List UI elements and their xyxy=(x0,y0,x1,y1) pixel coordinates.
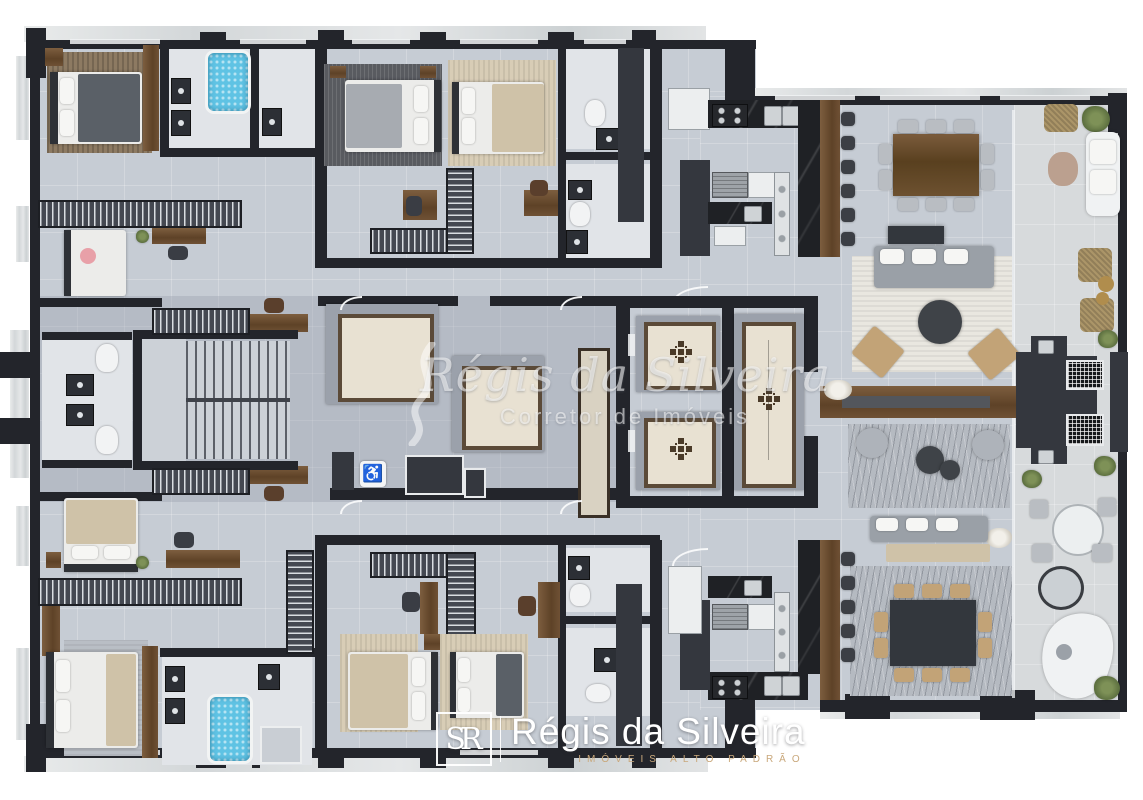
bed-blanket xyxy=(66,500,136,544)
desk-wood xyxy=(152,228,206,244)
terrace-chair xyxy=(1032,544,1052,562)
dining-chair xyxy=(954,120,974,133)
watermark: Régis da Silveira Corretor de Imóveis xyxy=(420,348,760,430)
wall-pier xyxy=(725,43,755,105)
dining-chair xyxy=(898,198,918,211)
bed-blanket xyxy=(106,654,136,746)
watermark-ribbon-icon xyxy=(402,342,436,446)
vanity-sink xyxy=(566,230,588,254)
ball-pouf xyxy=(1056,644,1072,660)
bed-pillow xyxy=(458,658,470,682)
wall-left xyxy=(30,44,40,754)
shelf-wood xyxy=(42,606,60,656)
kitchen-sink xyxy=(782,676,800,696)
sofa-pillow xyxy=(936,518,958,531)
footer-logo: SR Régis da Silveira IMÓVEIS ALTO PADRÃO xyxy=(436,712,806,766)
accessible-wc-sign: ♿ xyxy=(360,461,386,487)
toilet xyxy=(96,426,118,454)
core-wall xyxy=(616,296,818,308)
oven-column xyxy=(774,592,790,672)
refrigerator xyxy=(712,172,748,198)
toilet xyxy=(585,100,605,126)
vanity-sink xyxy=(568,180,592,200)
kitchen-cabinet-marble xyxy=(798,540,822,674)
bed-pillow xyxy=(414,118,428,144)
wall-interior xyxy=(160,148,318,157)
plant xyxy=(1022,470,1042,488)
bathtub xyxy=(207,694,253,764)
window xyxy=(70,39,160,44)
wall-interior xyxy=(315,258,660,268)
wall-pier xyxy=(26,724,46,772)
closet-hangers xyxy=(370,552,448,578)
bbq-sink xyxy=(1038,340,1054,354)
nightstand xyxy=(330,66,346,78)
bed-pillow xyxy=(462,88,475,114)
bed-headboard xyxy=(434,80,441,152)
corridor-panel xyxy=(332,452,354,490)
toilet xyxy=(570,202,590,226)
bar-stool xyxy=(841,648,855,662)
closet-hangers xyxy=(370,228,448,254)
core-wall xyxy=(804,436,818,500)
pouf-gray xyxy=(856,428,888,458)
dining-chair xyxy=(981,144,994,164)
bed-pillow xyxy=(104,546,130,559)
vanity-sink xyxy=(171,110,191,136)
nightstand xyxy=(45,48,63,66)
sofa-pillow xyxy=(912,249,936,264)
wall-pier xyxy=(845,694,890,719)
dining-chair-tan xyxy=(950,668,970,682)
stair-divider xyxy=(186,398,290,402)
wall-interior xyxy=(250,44,259,152)
coffee-table-round xyxy=(918,300,962,344)
bed-pillow xyxy=(56,660,70,692)
desk-chair xyxy=(402,592,420,612)
kitchen-cabinet-marble xyxy=(798,100,822,257)
wardrobe-hangers xyxy=(446,552,476,640)
stove-cooktop xyxy=(712,676,748,699)
bbq-grill xyxy=(1066,414,1104,446)
kitchen-island xyxy=(708,202,772,224)
dishwasher xyxy=(714,226,746,246)
bbq-counter xyxy=(1016,352,1032,448)
plant xyxy=(136,556,149,569)
kitchen-sink xyxy=(764,106,782,126)
balcony-stub-left xyxy=(16,206,29,262)
wardrobe-wood xyxy=(143,45,159,151)
bed-pillow xyxy=(412,658,425,686)
toilet xyxy=(586,684,610,702)
wall-pier xyxy=(26,28,46,78)
tv-console xyxy=(888,226,944,244)
vanity-sink xyxy=(165,666,185,692)
sofa-pillow xyxy=(1090,170,1116,194)
dining-chair-tan xyxy=(874,612,888,632)
dining-chair xyxy=(981,170,994,190)
side-table-black xyxy=(940,460,960,480)
wall-interior xyxy=(315,540,327,758)
bar-stool xyxy=(841,576,855,590)
stair-flight-up xyxy=(186,341,290,398)
bed-blanket xyxy=(496,654,522,716)
vanity-sink xyxy=(258,664,280,690)
wall-interior xyxy=(160,44,169,154)
bed-pillow xyxy=(414,86,428,112)
logo-monogram: SR xyxy=(436,712,492,766)
dining-chair xyxy=(879,144,892,164)
side-table-gold xyxy=(1098,276,1114,292)
vanity-sink xyxy=(262,108,282,136)
desk-wood xyxy=(538,582,560,638)
closet-hangers xyxy=(152,468,250,495)
dining-chair-tan xyxy=(922,668,942,682)
closet-column xyxy=(618,48,644,222)
window xyxy=(1000,95,1090,100)
wall-interior xyxy=(42,460,132,468)
console-table xyxy=(886,544,990,562)
kitchen-island xyxy=(708,576,772,598)
bar-stool xyxy=(841,600,855,614)
wall-interior xyxy=(30,298,162,307)
floor-plan-render: ♿ xyxy=(0,0,1143,800)
bar-stool xyxy=(841,184,855,198)
plant xyxy=(1094,676,1120,700)
logo-brand: Régis da Silveira xyxy=(511,713,806,750)
dining-chair xyxy=(926,120,946,133)
desk-chair xyxy=(168,246,188,260)
bed-blanket xyxy=(346,84,402,148)
stair-landing xyxy=(142,339,186,461)
service-wall-block xyxy=(680,160,710,256)
bar-stool xyxy=(841,208,855,222)
chair-brown xyxy=(264,486,284,501)
bed-headboard xyxy=(64,230,71,296)
watermark-brand: Régis da Silveira xyxy=(420,348,760,402)
plant xyxy=(1082,106,1110,132)
nightstand xyxy=(46,552,61,568)
closet-hangers xyxy=(152,308,250,335)
bed-headboard xyxy=(450,652,456,718)
bbq-sink xyxy=(1038,450,1054,464)
window xyxy=(460,39,538,44)
chair-brown xyxy=(264,298,284,313)
bed-pillow xyxy=(458,688,470,712)
bathtub xyxy=(205,50,251,114)
wall-interior xyxy=(315,535,660,545)
fire-balcony-stub xyxy=(0,418,30,444)
dining-chair-tan xyxy=(874,638,888,658)
dining-chair-tan xyxy=(894,668,914,682)
stair-flight-down xyxy=(186,402,290,459)
console-runner xyxy=(842,396,990,408)
dining-chair-tan xyxy=(922,584,942,598)
nightstand xyxy=(424,634,440,650)
wall-pier xyxy=(420,32,446,49)
bar-stool xyxy=(841,552,855,566)
stove-cooktop xyxy=(712,104,748,127)
bed-blanket xyxy=(78,74,140,142)
dining-chair xyxy=(898,120,918,133)
corridor-counter xyxy=(405,455,464,495)
bed-headboard xyxy=(64,564,138,572)
dining-table-dark xyxy=(890,600,976,666)
vanity-sink xyxy=(66,374,94,396)
wall-pier xyxy=(1108,93,1127,133)
bar-stool xyxy=(841,232,855,246)
vanity-sink xyxy=(66,404,94,426)
desk-chair xyxy=(530,180,548,196)
bed-pillow xyxy=(60,78,74,104)
toilet xyxy=(96,344,118,372)
kitchen-sink xyxy=(764,676,782,696)
bed-pillow xyxy=(412,692,425,720)
closet-hangers xyxy=(38,578,242,606)
dining-table xyxy=(893,134,979,196)
side-table-gold xyxy=(1096,292,1109,305)
bbq-counter xyxy=(1110,352,1128,452)
laundry-unit xyxy=(668,88,710,130)
wardrobe-hangers xyxy=(446,168,474,254)
kitchen-appliance xyxy=(748,604,776,630)
pink-pillow xyxy=(80,248,96,264)
bed-headboard xyxy=(46,652,54,748)
pouf-rose xyxy=(1048,152,1078,186)
sofa-pillow xyxy=(944,249,968,264)
window xyxy=(880,95,980,100)
bed-pillow xyxy=(56,700,70,732)
dining-chair xyxy=(954,198,974,211)
logo-divider xyxy=(500,716,501,762)
refrigerator-white xyxy=(668,566,702,634)
plant xyxy=(1098,330,1118,348)
terrace-chair xyxy=(1092,544,1112,562)
desk-wood xyxy=(166,550,240,568)
vanity-sink xyxy=(171,78,191,104)
desk-chair xyxy=(406,196,422,216)
closet-hangers xyxy=(38,200,242,228)
dining-chair-tan xyxy=(894,584,914,598)
balcony-stub-left xyxy=(16,506,29,566)
vanity-sink xyxy=(568,556,590,580)
plant xyxy=(136,230,149,243)
sofa-pillow xyxy=(1090,140,1116,164)
bar-stool xyxy=(841,160,855,174)
dining-chair-tan xyxy=(978,638,992,658)
wc-floor xyxy=(42,334,132,464)
sofa-pillow xyxy=(876,518,898,531)
pouf-gray xyxy=(972,430,1004,460)
sofa-pillow xyxy=(880,249,904,264)
bbq-grill xyxy=(1066,360,1104,390)
desk-wood xyxy=(420,582,438,634)
plant xyxy=(1094,456,1116,476)
stair-wall xyxy=(133,330,142,470)
wall-interior xyxy=(42,332,132,340)
island-sink xyxy=(744,580,762,596)
bed-headboard xyxy=(50,72,58,144)
nightstand xyxy=(420,66,436,78)
wall-pier xyxy=(200,32,226,49)
desk-chair xyxy=(174,532,194,548)
vanity-sink xyxy=(165,698,185,724)
bed-pillow xyxy=(60,110,74,136)
bed-blanket xyxy=(492,84,544,152)
bed-pillow xyxy=(72,546,98,559)
window xyxy=(352,39,410,44)
core-wall xyxy=(616,496,818,508)
hanging-chair xyxy=(1038,566,1084,610)
bed-blanket xyxy=(350,654,408,728)
elevator-door xyxy=(628,430,635,452)
bar-stool xyxy=(841,112,855,126)
wardrobe-wood xyxy=(142,646,158,758)
sofa-pillow xyxy=(906,518,928,531)
breakfast-bar xyxy=(820,540,840,700)
island-sink xyxy=(744,206,762,222)
bed-single xyxy=(64,230,126,296)
bar-stool xyxy=(841,136,855,150)
dining-chair xyxy=(926,198,946,211)
fire-balcony-stub xyxy=(0,352,30,378)
kitchen-appliance xyxy=(748,172,776,198)
bar-stool xyxy=(841,624,855,638)
dining-chair-tan xyxy=(950,584,970,598)
bed-pillow xyxy=(462,118,475,144)
dining-chair xyxy=(879,170,892,190)
desk-chair xyxy=(518,596,536,616)
terrace-chair xyxy=(1030,500,1048,518)
wardrobe-hangers xyxy=(286,550,314,654)
refrigerator xyxy=(712,604,748,630)
bed-headboard xyxy=(452,82,459,154)
watermark-subtitle: Corretor de Imóveis xyxy=(420,404,760,430)
shower xyxy=(260,726,302,764)
floor-rosette xyxy=(678,446,684,452)
corridor-panel xyxy=(464,468,486,498)
toilet xyxy=(570,584,590,606)
logo-tagline: IMÓVEIS ALTO PADRÃO xyxy=(511,754,806,765)
dining-chair-tan xyxy=(978,612,992,632)
oven-column xyxy=(774,172,790,256)
wall-interior xyxy=(490,296,616,306)
terrace-chair xyxy=(1098,498,1116,516)
wicker-chair xyxy=(1044,104,1078,132)
breakfast-bar xyxy=(820,100,840,257)
window xyxy=(584,39,626,44)
